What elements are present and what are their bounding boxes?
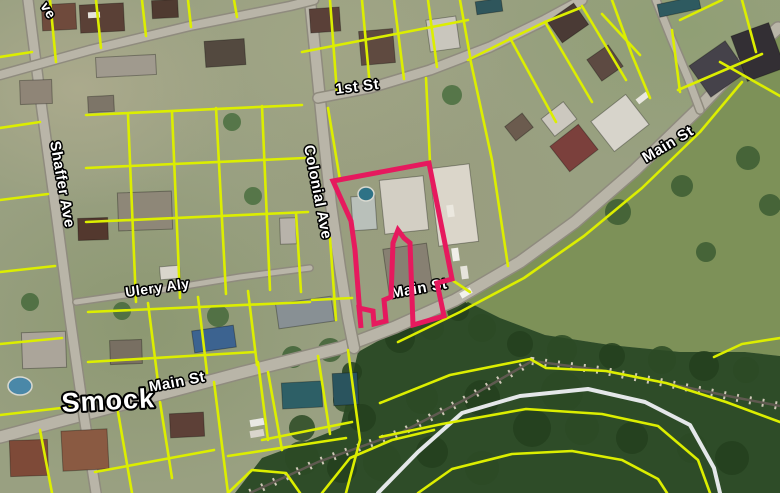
map-viewport[interactable]: 1st StMain StMain StMain StShaffer AveCo… bbox=[0, 0, 780, 493]
parcel-line bbox=[426, 78, 430, 162]
building bbox=[117, 191, 172, 231]
tree bbox=[21, 293, 39, 311]
parcel-line bbox=[460, 0, 470, 56]
car bbox=[249, 418, 264, 427]
parcel-line bbox=[612, 0, 650, 98]
tree bbox=[223, 113, 241, 131]
tree bbox=[736, 146, 760, 170]
tree bbox=[671, 175, 693, 197]
building bbox=[379, 176, 428, 234]
building bbox=[152, 0, 179, 19]
swimming-pool bbox=[358, 187, 374, 201]
parcel-line bbox=[394, 0, 404, 79]
tree bbox=[733, 357, 759, 383]
swimming-pool bbox=[8, 377, 32, 395]
tree bbox=[513, 409, 551, 447]
tree bbox=[759, 194, 780, 216]
car bbox=[451, 248, 460, 262]
town-label: Smock bbox=[61, 383, 156, 418]
tree bbox=[289, 415, 315, 441]
building bbox=[169, 412, 204, 438]
parcel-line bbox=[0, 407, 70, 415]
tree bbox=[696, 242, 716, 262]
tree bbox=[605, 199, 631, 225]
parcel-line bbox=[86, 158, 305, 168]
parcel-line bbox=[0, 266, 55, 272]
tree bbox=[507, 331, 533, 357]
building bbox=[79, 3, 124, 33]
map-canvas: 1st StMain StMain StMain StShaffer AveCo… bbox=[0, 0, 780, 493]
parcel-line bbox=[262, 106, 270, 290]
car bbox=[249, 429, 264, 438]
tree bbox=[565, 411, 599, 445]
tree bbox=[648, 346, 676, 374]
parcel-line bbox=[142, 0, 146, 36]
building bbox=[505, 113, 533, 141]
tree bbox=[244, 187, 262, 205]
tree bbox=[547, 335, 577, 365]
building bbox=[309, 7, 341, 33]
parcel-line bbox=[86, 105, 302, 115]
tree bbox=[616, 422, 648, 454]
tree bbox=[468, 314, 496, 342]
building bbox=[280, 218, 297, 245]
parcel-line bbox=[95, 450, 214, 472]
parcel-line bbox=[510, 38, 556, 122]
building bbox=[281, 381, 322, 409]
road-ulery-aly bbox=[76, 268, 310, 302]
parcel-line bbox=[214, 382, 228, 493]
tree bbox=[207, 305, 229, 327]
parcel-line bbox=[216, 108, 226, 294]
building bbox=[657, 0, 701, 17]
tree bbox=[599, 343, 625, 369]
building bbox=[21, 331, 66, 369]
road-surface bbox=[76, 268, 310, 302]
parcel-line bbox=[296, 213, 301, 292]
building bbox=[61, 429, 109, 471]
building bbox=[20, 79, 53, 104]
parcel-line bbox=[118, 412, 132, 493]
tree bbox=[442, 85, 462, 105]
building bbox=[475, 0, 503, 15]
building bbox=[96, 54, 157, 77]
parcel-line bbox=[248, 291, 257, 365]
building bbox=[587, 45, 623, 81]
parcel-line bbox=[0, 52, 32, 57]
tree bbox=[715, 441, 749, 475]
building bbox=[88, 95, 115, 112]
tree bbox=[465, 451, 499, 485]
building bbox=[204, 39, 246, 68]
parcel-line bbox=[0, 194, 48, 200]
building bbox=[192, 325, 237, 353]
street-label: 1st St bbox=[334, 76, 380, 98]
parcel-line bbox=[148, 303, 158, 382]
car bbox=[460, 266, 469, 280]
parcel-line bbox=[0, 122, 40, 128]
